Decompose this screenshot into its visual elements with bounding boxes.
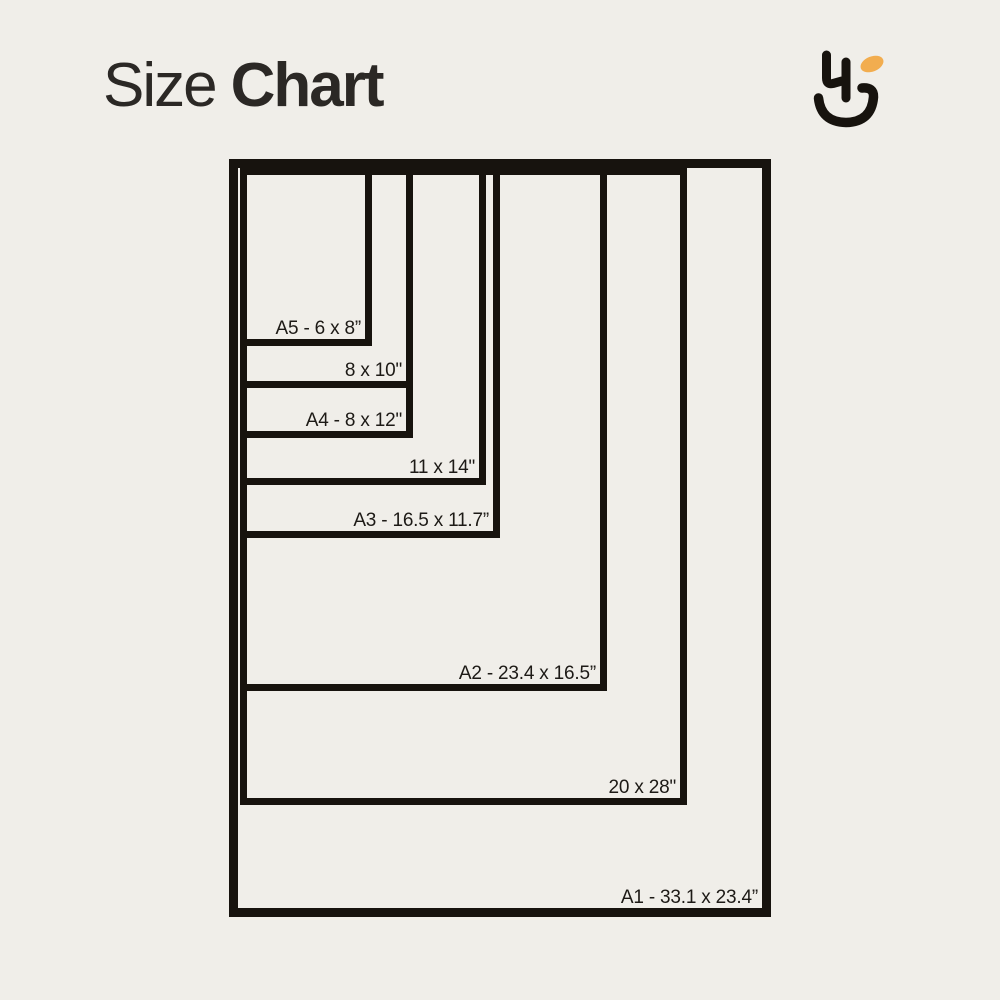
size-label-20x28: 20 x 28" [609,778,676,797]
nested-size-rectangles: A1 - 33.1 x 23.4”20 x 28"A2 - 23.4 x 16.… [0,0,1000,1000]
size-label-A3: A3 - 16.5 x 11.7” [353,511,489,530]
size-label-A2: A2 - 23.4 x 16.5” [459,664,596,683]
size-label-11x14: 11 x 14" [409,458,475,477]
size-label-A1: A1 - 33.1 x 23.4” [621,888,758,907]
size-chart-infographic: Size Chart A1 - 33.1 x 23.4”20 x 28"A2 -… [0,0,1000,1000]
size-label-A4: A4 - 8 x 12" [306,411,402,430]
size-label-8x10: 8 x 10" [345,361,402,380]
size-label-A5: A5 - 6 x 8” [276,319,361,338]
size-rect-A5: A5 - 6 x 8” [240,168,372,346]
